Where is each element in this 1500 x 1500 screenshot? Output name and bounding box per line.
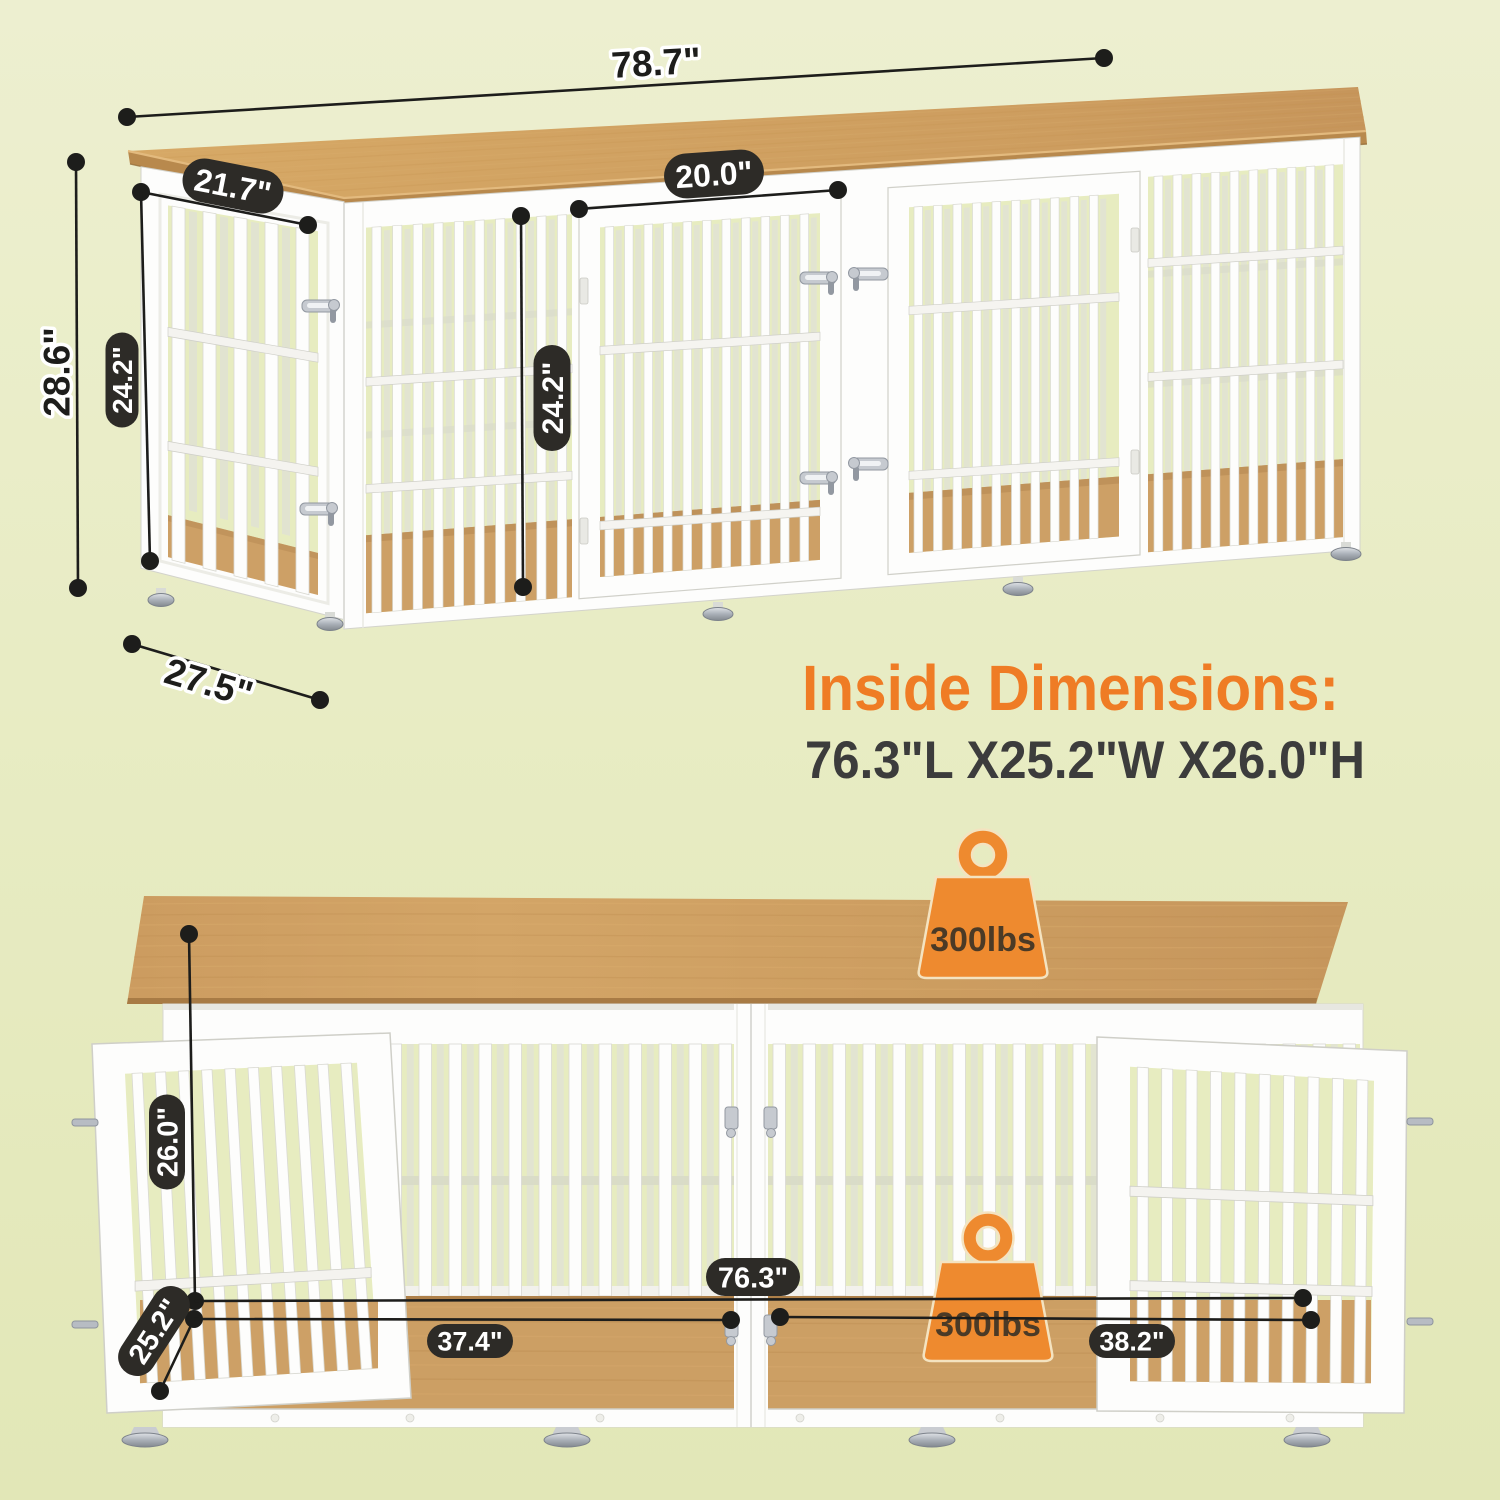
svg-text:Inside Dimensions:: Inside Dimensions: <box>802 652 1339 724</box>
svg-text:26.0": 26.0" <box>152 1107 184 1177</box>
svg-text:37.4": 37.4" <box>437 1327 502 1357</box>
svg-text:20.0": 20.0" <box>674 154 754 195</box>
svg-text:76.3": 76.3" <box>718 1262 788 1294</box>
svg-text:300lbs: 300lbs <box>935 1306 1041 1344</box>
svg-text:300lbs: 300lbs <box>930 921 1036 959</box>
svg-text:78.7": 78.7" <box>610 40 702 86</box>
svg-text:76.3"L X25.2"W X26.0"H: 76.3"L X25.2"W X26.0"H <box>805 731 1365 790</box>
svg-text:24.2": 24.2" <box>107 346 138 414</box>
svg-text:28.6": 28.6" <box>36 327 77 417</box>
svg-text:24.2": 24.2" <box>537 362 570 435</box>
svg-text:38.2": 38.2" <box>1099 1327 1164 1357</box>
